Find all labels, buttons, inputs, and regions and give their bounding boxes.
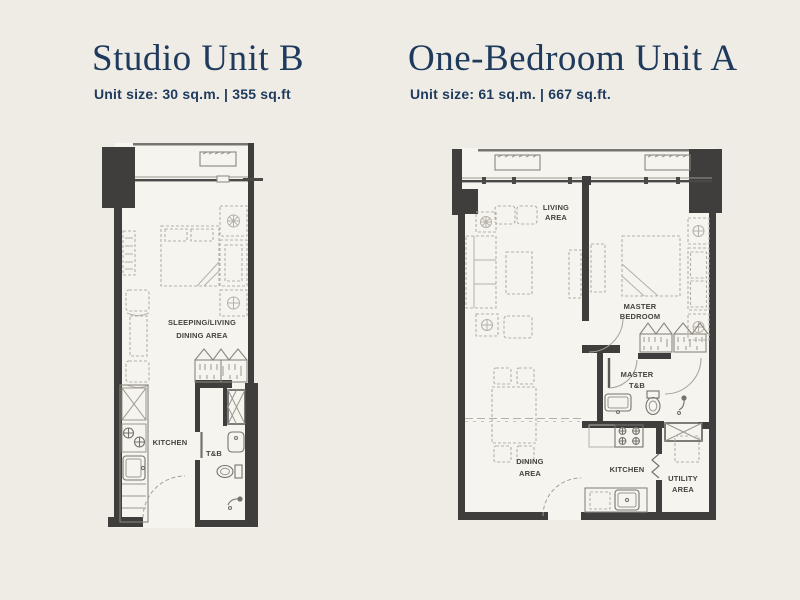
one-bedroom-unit-title: One-Bedroom Unit A: [408, 40, 738, 77]
page: { "page": { "background_color": "#efece5…: [0, 0, 800, 600]
onebed-living-label-line2: AREA: [545, 213, 567, 222]
studio-kitchen-label: KITCHEN: [153, 438, 188, 447]
onebed-utility-label-line1: UTILITY: [668, 474, 698, 483]
onebed-living-label-line1: LIVING: [543, 203, 569, 212]
studio-shaft: [228, 390, 245, 424]
one-bedroom-unit-header: One-Bedroom Unit A Unit size: 61 sq.m. |…: [408, 40, 738, 102]
one-bedroom-unit-size: Unit size: 61 sq.m. | 667 sq.ft.: [410, 86, 738, 102]
onebed-utility-label-line2: AREA: [672, 485, 694, 494]
onebed-bath-label-line1: MASTER: [621, 370, 654, 379]
onebed-bath-label-line2: T&B: [629, 381, 645, 390]
onebed-bedroom-label-line2: BEDROOM: [620, 312, 661, 321]
studio-floor-plan: SLEEPING/LIVING DINING AREA KITCHEN T&B: [97, 138, 263, 530]
onebed-shaft: [665, 423, 702, 441]
studio-unit-size: Unit size: 30 sq.m. | 355 sq.ft: [94, 86, 304, 102]
studio-main-room-label-line2: DINING AREA: [176, 331, 228, 340]
studio-unit-title: Studio Unit B: [92, 40, 304, 77]
one-bedroom-floor-plan: LIVING AREA MASTER BEDROOM MASTER T&B DI…: [448, 140, 728, 530]
studio-bath-label: T&B: [206, 449, 222, 458]
onebed-dining-label-line2: AREA: [519, 469, 541, 478]
onebed-bedroom-label-line1: MASTER: [624, 302, 657, 311]
onebed-kitchen-label: KITCHEN: [610, 465, 645, 474]
studio-main-room-label-line1: SLEEPING/LIVING: [168, 318, 236, 327]
onebed-dining-label-line1: DINING: [516, 457, 543, 466]
studio-unit-header: Studio Unit B Unit size: 30 sq.m. | 355 …: [92, 40, 304, 102]
